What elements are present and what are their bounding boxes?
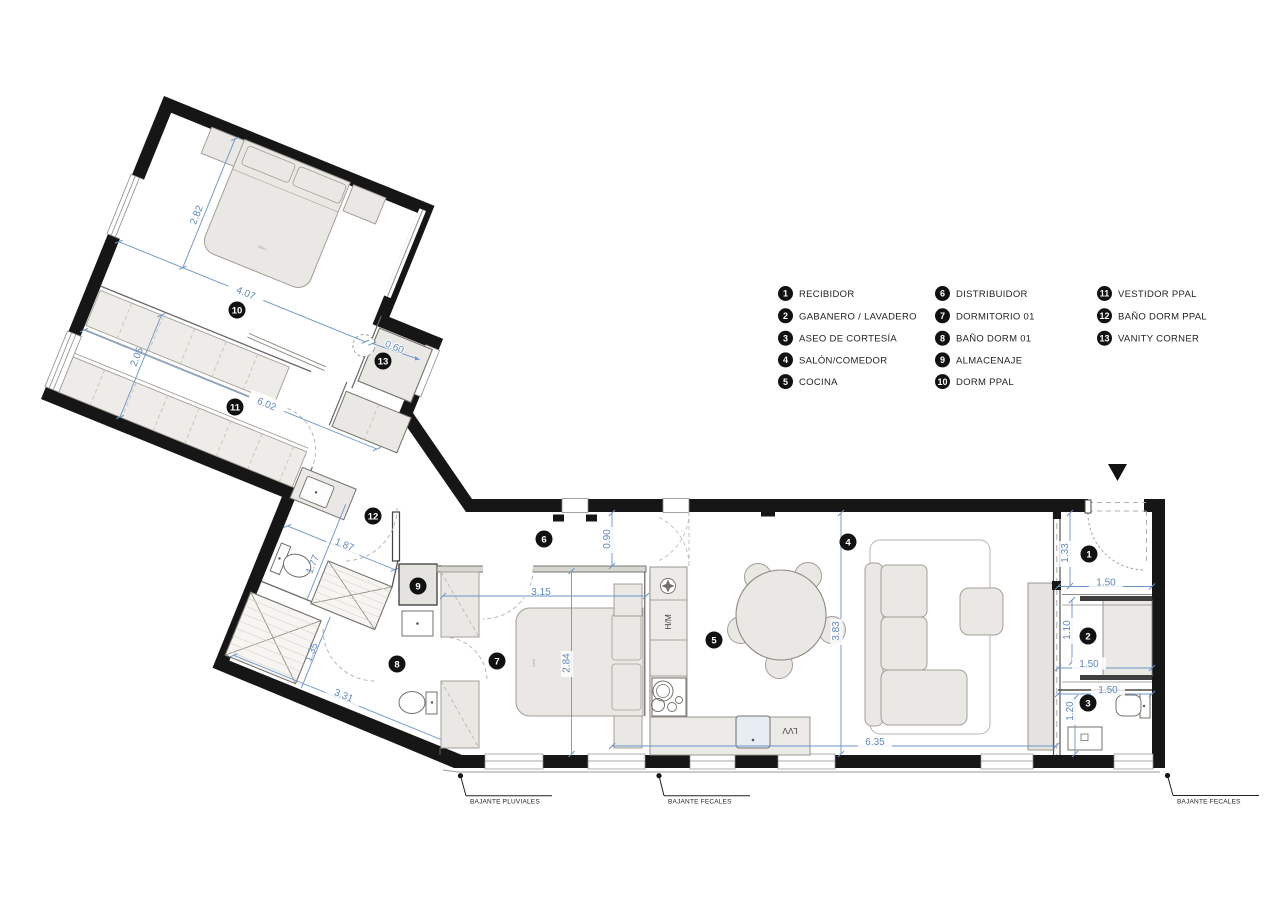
svg-text:13: 13 <box>378 356 389 367</box>
svg-text:1.50: 1.50 <box>1098 685 1118 696</box>
svg-text:1.10: 1.10 <box>1062 620 1073 640</box>
svg-text:4: 4 <box>845 537 851 548</box>
svg-text:3.83: 3.83 <box>831 621 842 641</box>
svg-text:BAÑO DORM PPAL: BAÑO DORM PPAL <box>1118 311 1207 322</box>
svg-text:BAJANTE PLUVIALES: BAJANTE PLUVIALES <box>470 799 540 806</box>
svg-text:13: 13 <box>1099 333 1109 343</box>
svg-text:LVV: LVV <box>782 726 798 736</box>
svg-text:6: 6 <box>541 534 546 545</box>
svg-text:3: 3 <box>783 333 788 343</box>
svg-text:BAJANTE FECALES: BAJANTE FECALES <box>668 799 732 806</box>
svg-text:DORM PPAL: DORM PPAL <box>956 377 1014 388</box>
svg-text:ALMACENAJE: ALMACENAJE <box>956 355 1022 366</box>
svg-text:RECIBIDOR: RECIBIDOR <box>799 289 854 300</box>
svg-text:1.50: 1.50 <box>1079 659 1099 670</box>
svg-text:10: 10 <box>232 305 243 316</box>
svg-text:H/M: H/M <box>663 614 673 630</box>
svg-text:1.50: 1.50 <box>1096 578 1116 589</box>
svg-text:COCINA: COCINA <box>799 377 838 388</box>
svg-text:BAJANTE FECALES: BAJANTE FECALES <box>1177 799 1241 806</box>
svg-text:9: 9 <box>940 355 945 365</box>
svg-text:1: 1 <box>1086 549 1092 560</box>
svg-text:ASEO DE CORTESÍA: ASEO DE CORTESÍA <box>799 334 897 345</box>
svg-text:DISTRIBUIDOR: DISTRIBUIDOR <box>956 289 1028 300</box>
svg-text:1.33: 1.33 <box>1060 543 1071 563</box>
svg-text:DORMITORIO 01: DORMITORIO 01 <box>956 311 1035 322</box>
svg-text:6: 6 <box>940 289 945 299</box>
svg-text:1: 1 <box>783 289 788 299</box>
svg-text:2: 2 <box>783 311 788 321</box>
svg-text:8: 8 <box>940 333 945 343</box>
svg-text:SALÓN/COMEDOR: SALÓN/COMEDOR <box>799 355 887 366</box>
svg-text:2.84: 2.84 <box>562 653 573 673</box>
svg-text:label: label <box>531 659 536 668</box>
svg-text:2: 2 <box>1085 631 1090 642</box>
svg-text:9: 9 <box>415 581 420 592</box>
svg-text:10: 10 <box>937 377 947 387</box>
svg-text:12: 12 <box>368 511 379 522</box>
svg-text:6.35: 6.35 <box>865 737 885 748</box>
svg-text:7: 7 <box>494 656 499 667</box>
svg-text:7: 7 <box>940 311 945 321</box>
svg-text:5: 5 <box>711 635 717 646</box>
svg-text:VESTIDOR PPAL: VESTIDOR PPAL <box>1118 289 1197 300</box>
svg-text:3: 3 <box>1085 698 1090 709</box>
svg-text:VANITY CORNER: VANITY CORNER <box>1118 334 1199 345</box>
svg-text:5: 5 <box>783 377 788 387</box>
svg-text:12: 12 <box>1099 311 1109 321</box>
svg-text:0.90: 0.90 <box>602 529 613 549</box>
svg-text:11: 11 <box>1100 289 1110 299</box>
svg-text:BAÑO DORM 01: BAÑO DORM 01 <box>956 334 1031 345</box>
svg-text:11: 11 <box>230 402 241 413</box>
svg-text:8: 8 <box>394 659 399 670</box>
svg-text:GABANERO / LAVADERO: GABANERO / LAVADERO <box>799 311 917 322</box>
svg-text:1.20: 1.20 <box>1065 701 1076 721</box>
svg-text:4: 4 <box>783 355 788 365</box>
